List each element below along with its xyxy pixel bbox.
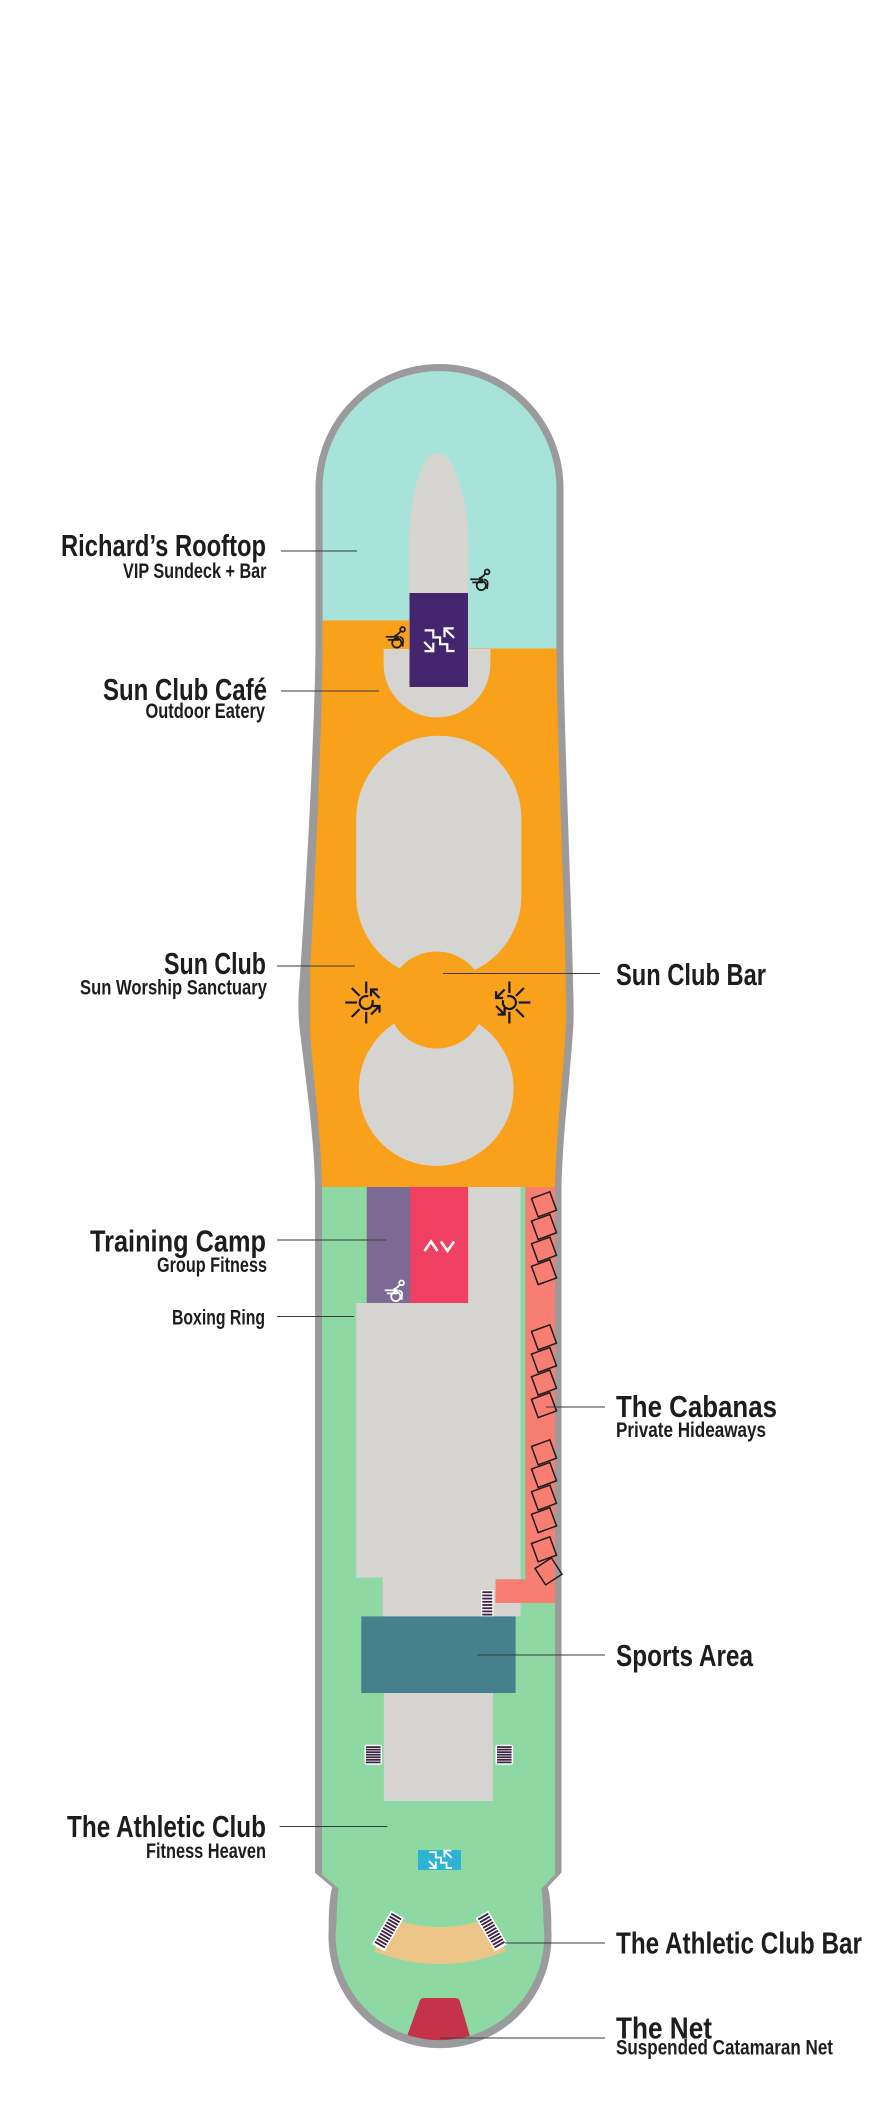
svg-text:Group Fitness: Group Fitness [157, 1254, 267, 1277]
svg-text:Fitness Heaven: Fitness Heaven [146, 1840, 266, 1863]
svg-text:Sun Club Bar: Sun Club Bar [616, 957, 766, 992]
svg-text:Suspended Catamaran Net: Suspended Catamaran Net [616, 2037, 833, 2060]
svg-text:VIP Sundeck + Bar: VIP Sundeck + Bar [123, 560, 267, 583]
svg-text:The Athletic Club: The Athletic Club [67, 1809, 266, 1844]
svg-text:Sports Area: Sports Area [616, 1638, 754, 1673]
svg-text:Boxing Ring: Boxing Ring [172, 1307, 265, 1330]
svg-text:Private Hideaways: Private Hideaways [616, 1419, 766, 1442]
svg-text:Outdoor Eatery: Outdoor Eatery [146, 700, 266, 723]
svg-text:Richard’s Rooftop: Richard’s Rooftop [61, 528, 266, 563]
svg-text:The Athletic Club Bar: The Athletic Club Bar [616, 1926, 862, 1961]
svg-text:Sun Worship Sanctuary: Sun Worship Sanctuary [80, 977, 267, 1000]
